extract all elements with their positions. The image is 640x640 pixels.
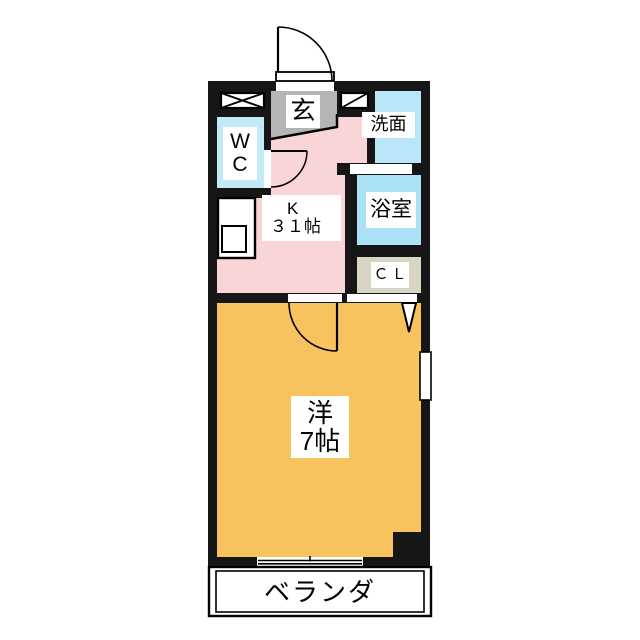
entrance-door-icon <box>276 27 334 81</box>
wall-corner-column <box>393 532 430 567</box>
bath-door-opening <box>350 164 412 174</box>
genkan-label: 玄 <box>286 95 320 128</box>
meter-box-icon <box>341 93 368 108</box>
western-room-label-line2: 7帖 <box>300 427 340 455</box>
washroom-label-text: 洗面 <box>371 115 407 134</box>
entrance-opening <box>276 81 334 91</box>
western-room-label-line1: 洋 <box>307 399 333 427</box>
western-room-label: 洋 7帖 <box>291 396 349 458</box>
closet-label: ＣＬ <box>371 262 409 288</box>
wall-right <box>421 81 430 567</box>
wc-label-line1: W <box>230 131 250 154</box>
closet-label-text: ＣＬ <box>374 267 410 283</box>
genkan-label-text: 玄 <box>290 98 315 125</box>
wall-bath-bottom <box>345 245 421 257</box>
floorplan-canvas: 玄 W C 洗面 浴室 ＣＬ K ３１帖 洋 7帖 ベランダ <box>0 0 640 640</box>
wc-label: W C <box>223 127 257 180</box>
pipe-space-icon <box>221 93 264 108</box>
bath-label: 浴室 <box>366 192 416 228</box>
side-window-icon <box>420 352 431 400</box>
kitchen-label-line2: ３１帖 <box>270 218 321 236</box>
wall-kitchen-right <box>345 163 357 303</box>
bath-label-text: 浴室 <box>370 199 412 222</box>
veranda-label: ベランダ <box>209 572 431 612</box>
wc-label-line2: C <box>232 154 247 177</box>
wc-door-opening <box>264 150 271 188</box>
room-door-opening <box>288 294 342 302</box>
entrance-threshold <box>276 72 334 81</box>
closet-opening <box>347 294 417 302</box>
washroom-label: 洗面 <box>362 112 415 138</box>
kitchen-label: K ３１帖 <box>262 195 341 241</box>
floorplan-drawing <box>0 0 640 640</box>
wall-left <box>208 81 217 567</box>
kitchen-sink <box>222 226 246 252</box>
veranda-label-text: ベランダ <box>264 578 376 606</box>
kitchen-label-line1: K <box>287 200 298 218</box>
kitchen-sink-icon <box>218 198 255 258</box>
